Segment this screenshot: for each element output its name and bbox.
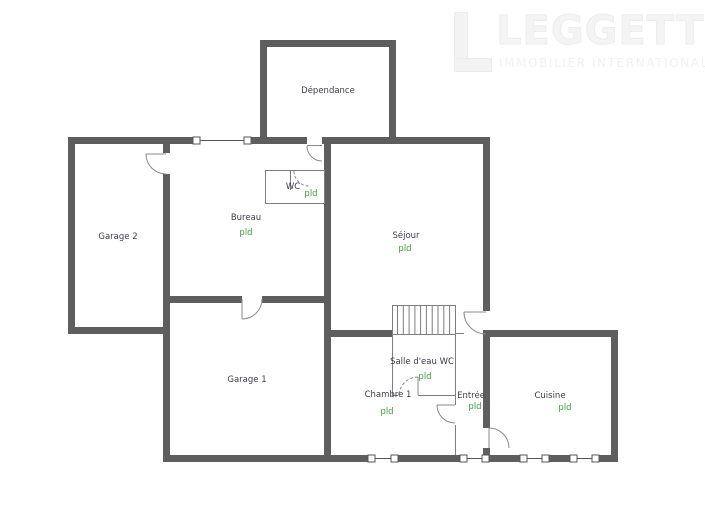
floor-plan-drawing	[0, 0, 705, 528]
room-tag-entree: pld	[468, 402, 481, 412]
room-tag-cuisine: pld	[558, 403, 571, 413]
room-label-chambre-1: Chambre 1	[365, 390, 412, 400]
door-arc	[242, 299, 262, 319]
door-arc	[437, 405, 455, 423]
windows	[193, 137, 599, 462]
room-tag-wc: pld	[304, 189, 317, 199]
room-tag-bureau: pld	[239, 228, 252, 238]
room-label-garage-2: Garage 2	[98, 232, 137, 242]
room-tag-chambre-1: pld	[380, 407, 393, 417]
room-label-bureau: Bureau	[231, 213, 261, 223]
room-label-salle-deau: Salle d'eau WC	[390, 357, 454, 367]
window	[368, 455, 398, 462]
room-label-dependance: Dépendance	[301, 86, 355, 96]
door-arc	[464, 312, 486, 334]
room-label-wc: WC	[286, 182, 300, 192]
room-label-cuisine: Cuisine	[534, 391, 565, 401]
floor-plan-page: LEGGETT IMMOBILIER INTERNATIONAL	[0, 0, 705, 528]
door-arc	[146, 154, 166, 174]
room-label-garage-1: Garage 1	[227, 375, 266, 385]
partition-walls	[266, 170, 465, 455]
room-label-entree: Entrée	[457, 391, 485, 401]
window	[570, 455, 599, 462]
room-tag-salle-deau: pld	[418, 372, 431, 382]
door-arc	[307, 146, 322, 162]
room-tag-sejour: pld	[398, 244, 411, 254]
door-arc	[489, 428, 509, 448]
window	[520, 455, 549, 462]
staircase	[392, 305, 455, 335]
room-label-sejour: Séjour	[392, 231, 419, 241]
window	[460, 455, 489, 462]
window	[193, 137, 251, 144]
